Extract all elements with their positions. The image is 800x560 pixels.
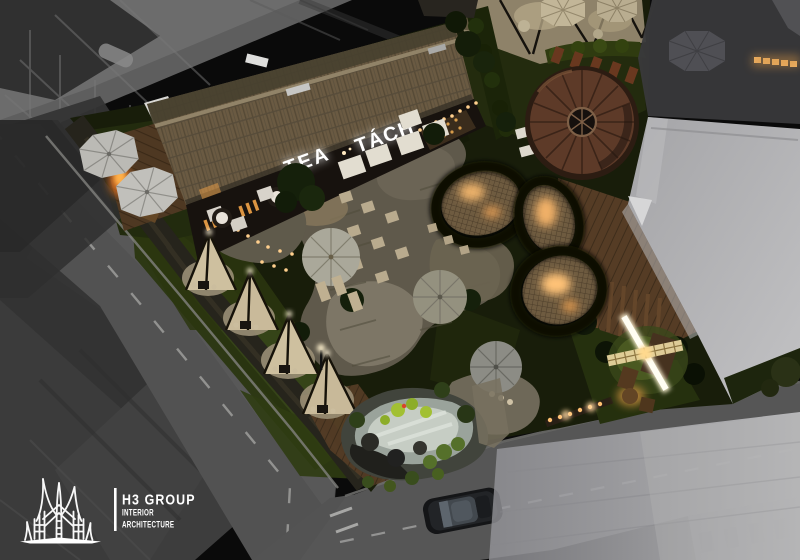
svg-text:ARCHITECTURE: ARCHITECTURE bbox=[122, 519, 174, 530]
svg-text:H3 GROUP: H3 GROUP bbox=[122, 492, 196, 508]
svg-text:INTERIOR: INTERIOR bbox=[122, 507, 154, 518]
